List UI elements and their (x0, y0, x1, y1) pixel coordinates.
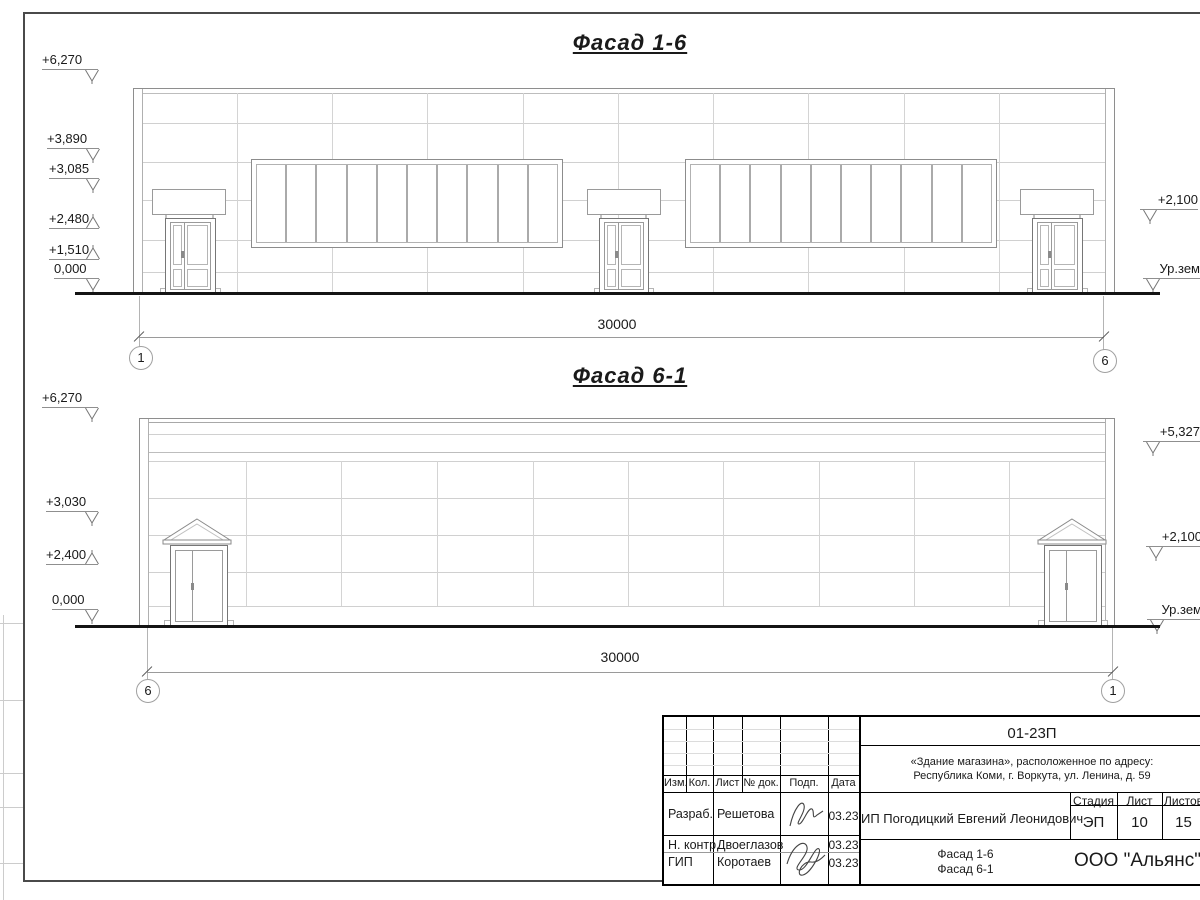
tb-stage-label: Стадия (1070, 794, 1117, 808)
level-mark: +2,100 (1146, 529, 1200, 547)
level-arrow-down-icon (1145, 441, 1161, 456)
ground-line-bottom (75, 625, 1160, 628)
level-value: +2,100 (1140, 192, 1198, 207)
level-arrow-down-icon (85, 278, 101, 293)
window-pane (872, 165, 902, 242)
ribbon-window-right (685, 159, 997, 248)
tb-role: ГИП (668, 855, 693, 869)
tb-line (664, 792, 1200, 793)
door-panel (173, 269, 182, 287)
tb-stage-value: ЭП (1070, 814, 1117, 831)
level-value: 0,000 (54, 261, 99, 276)
cornice-line (140, 452, 1114, 453)
door-handle (615, 251, 618, 258)
level-value: +2,100 (1146, 529, 1200, 544)
door-glazing (1054, 225, 1075, 265)
window-pane (842, 165, 872, 242)
door-leaf-wide (1052, 223, 1077, 289)
level-mark: +1,510 (49, 242, 99, 260)
window-pane (691, 165, 721, 242)
tb-col-podp: Подп. (780, 777, 828, 789)
ground-line-top (75, 292, 1160, 295)
entrance-door (170, 545, 228, 627)
edge-fragment-line (3, 615, 4, 900)
level-arrow-up-icon (84, 550, 100, 565)
tb-line (664, 835, 859, 836)
tb-company: ООО "Альянс" (1070, 850, 1200, 872)
panel-joint (237, 93, 238, 294)
door-panel (621, 269, 641, 287)
window-pane (287, 165, 317, 242)
door-glazing (187, 225, 208, 265)
level-arrow-down-icon (1145, 278, 1161, 293)
level-arrow-up-icon (85, 214, 101, 229)
level-mark: +5,327 (1143, 424, 1200, 442)
window-pane (902, 165, 932, 242)
level-value: 0,000 (52, 592, 98, 607)
tb-sheet-label: Лист (1117, 794, 1162, 808)
level-arrow-down-icon (84, 609, 100, 624)
window-pane (378, 165, 408, 242)
window-pane (408, 165, 438, 242)
tb-address-line2: Республика Коми, г. Воркута, ул. Ленина,… (859, 770, 1200, 782)
level-arrow-down-icon (84, 511, 100, 526)
tb-line (664, 765, 859, 766)
curtainwall-mullion (341, 461, 342, 606)
tb-line (713, 717, 714, 884)
door-glazing (173, 225, 182, 265)
dimension-value: 30000 (567, 316, 667, 332)
entrance-door (1044, 545, 1102, 627)
tb-sheets-value: 15 (1162, 814, 1200, 831)
level-value: +5,327 (1143, 424, 1200, 439)
tb-line (664, 852, 859, 853)
axis-bubble: 6 (1093, 349, 1117, 373)
entrance-canopy (152, 189, 226, 215)
axis-bubble: 6 (136, 679, 160, 703)
level-mark: +6,270 (42, 390, 98, 408)
tb-line (859, 839, 1200, 840)
level-arrow-down-icon (84, 407, 100, 422)
door-frame (1037, 222, 1078, 290)
door-handle (1048, 251, 1051, 258)
title-block: Изм. Кол. Лист № док. Подп. Дата Разраб.… (662, 715, 1200, 886)
level-mark: Ур.зем (1147, 602, 1200, 620)
tb-line (859, 745, 1200, 746)
tb-col-data: Дата (828, 777, 859, 789)
level-mark: Ур.зем (1143, 261, 1200, 279)
level-arrow-down-icon (85, 178, 101, 193)
window-pane (812, 165, 842, 242)
tb-role: Разраб. (668, 807, 713, 821)
curtainwall-mullion (246, 461, 247, 606)
door-handle (191, 583, 194, 590)
level-value: +3,890 (47, 131, 99, 146)
dimension-value: 30000 (570, 649, 670, 665)
door-glazing (1040, 225, 1049, 265)
window-pane (751, 165, 781, 242)
tb-line (664, 729, 859, 730)
facade-top-drawing (133, 88, 1115, 295)
level-arrow-down-icon (1142, 209, 1158, 224)
tb-line (780, 717, 781, 884)
tb-doc-code: 01-23П (859, 725, 1200, 742)
door-frame (1049, 550, 1097, 622)
level-value: +6,270 (42, 390, 98, 405)
door-glazing (607, 225, 616, 265)
window-pane (782, 165, 812, 242)
tb-line (664, 775, 859, 776)
tb-sheet-title-1: Фасад 1-6 (861, 847, 1070, 861)
axis-bubble: 1 (1101, 679, 1125, 703)
level-mark: 0,000 (52, 592, 98, 610)
window-pane (257, 165, 287, 242)
edge-fragment-line (0, 773, 23, 774)
curtainwall-mullion (819, 461, 820, 606)
level-mark: +2,480 (49, 211, 99, 229)
level-value: +3,030 (46, 494, 98, 509)
tb-name: Двоеглазов (717, 838, 783, 852)
frame-left-border (23, 12, 25, 882)
level-mark: +2,100 (1140, 192, 1198, 210)
window-pane (317, 165, 347, 242)
cornice-line (140, 434, 1114, 435)
door-handle (181, 251, 184, 258)
curtainwall-mullion (1009, 461, 1010, 606)
curtainwall-mullion (914, 461, 915, 606)
facade-bottom-title: Фасад 6-1 (450, 363, 810, 389)
door-leaf-wide (619, 223, 643, 289)
window-pane (963, 165, 991, 242)
level-mark: +3,085 (49, 161, 99, 179)
panel-joint (140, 535, 1114, 536)
dimension-line (139, 337, 1104, 338)
door-leaf (1067, 551, 1096, 621)
door-frame (170, 222, 211, 290)
tb-col-kol: Кол. (686, 777, 713, 789)
entrance-door (1032, 218, 1083, 293)
door-panel (1040, 269, 1049, 287)
tb-date: 03.23 (828, 809, 859, 823)
tb-date: 03.23 (828, 856, 859, 870)
tb-line (664, 753, 859, 754)
tb-col-list: Лист (713, 777, 742, 789)
pilaster-right (1105, 89, 1114, 294)
window-pane (933, 165, 963, 242)
entrance-canopy (587, 189, 661, 215)
entrance-door (599, 218, 649, 293)
window-pane (529, 165, 557, 242)
panel-joint (134, 123, 1114, 124)
tb-date: 03.23 (828, 838, 859, 852)
level-arrow-up-icon (85, 245, 101, 260)
door-handle (1065, 583, 1068, 590)
level-value: Ур.зем (1143, 261, 1200, 276)
panel-joint (140, 498, 1114, 499)
door-leaf-wide (185, 223, 210, 289)
window-frame (256, 164, 558, 243)
window-pane (438, 165, 468, 242)
frame-top-border (23, 12, 1200, 14)
edge-fragment-line (0, 700, 23, 701)
level-value: +6,270 (42, 52, 98, 67)
window-pane (499, 165, 529, 242)
tb-name: Решетова (717, 807, 774, 821)
pediment-icon (162, 517, 232, 545)
window-frame (690, 164, 992, 243)
dimension-line (147, 672, 1113, 673)
door-frame (175, 550, 223, 622)
tb-name: Коротаев (717, 855, 771, 869)
pilaster-left (134, 89, 143, 294)
signature-icon (782, 836, 828, 882)
panel-joint (999, 93, 1000, 294)
level-mark: 0,000 (54, 261, 99, 279)
facade-top-title: Фасад 1-6 (450, 30, 810, 56)
entrance-door (165, 218, 216, 293)
curtainwall-mullion (437, 461, 438, 606)
tb-client: ИП Погодицкий Евгений Леонидович (861, 811, 1070, 826)
level-arrow-down-icon (84, 69, 100, 84)
pediment-icon (1037, 517, 1107, 545)
edge-fragment-line (0, 863, 23, 864)
window-pane (348, 165, 378, 242)
door-glazing (621, 225, 641, 265)
panel-joint (140, 572, 1114, 573)
curtainwall-mullion (723, 461, 724, 606)
level-mark: +3,890 (47, 131, 99, 149)
signature-icon (782, 794, 828, 834)
level-value: +3,085 (49, 161, 99, 176)
pilaster-left (140, 419, 149, 626)
curtainwall-mullion (533, 461, 534, 606)
level-value: Ур.зем (1147, 602, 1200, 617)
ribbon-window-left (251, 159, 563, 248)
axis-extension-line (139, 296, 140, 347)
door-leaf (193, 551, 222, 621)
axis-extension-line (1103, 296, 1104, 350)
window-pane (721, 165, 751, 242)
level-mark: +3,030 (46, 494, 98, 512)
door-panel (1054, 269, 1075, 287)
tb-col-ndok: № док. (742, 777, 780, 789)
curtainwall-mullion (628, 461, 629, 606)
level-arrow-down-icon (1148, 546, 1164, 561)
tb-line (664, 741, 859, 742)
edge-fragment-line (0, 623, 23, 624)
level-mark: +6,270 (42, 52, 98, 70)
facade-bottom-drawing (139, 418, 1115, 627)
architectural-drawing-sheet: { "facade_top": { "title": "Фасад 1-6", … (0, 0, 1200, 900)
tb-address-line1: «Здание магазина», расположенное по адре… (859, 756, 1200, 768)
edge-fragment-line (0, 807, 23, 808)
cornice-line (134, 93, 1114, 94)
panel-joint (140, 606, 1114, 607)
tb-sheet-title-2: Фасад 6-1 (861, 862, 1070, 876)
panel-joint (140, 461, 1114, 462)
tb-sheets-label: Листов (1162, 794, 1200, 808)
level-mark: +2,400 (46, 547, 98, 565)
door-panel (607, 269, 616, 287)
tb-col-izm: Изм. (664, 777, 686, 789)
window-pane (468, 165, 498, 242)
tb-sheet-value: 10 (1117, 814, 1162, 831)
entrance-canopy (1020, 189, 1094, 215)
axis-bubble: 1 (129, 346, 153, 370)
door-frame (604, 222, 644, 290)
cornice-line (140, 422, 1114, 423)
tb-role: Н. контр. (668, 838, 720, 852)
door-panel (187, 269, 208, 287)
